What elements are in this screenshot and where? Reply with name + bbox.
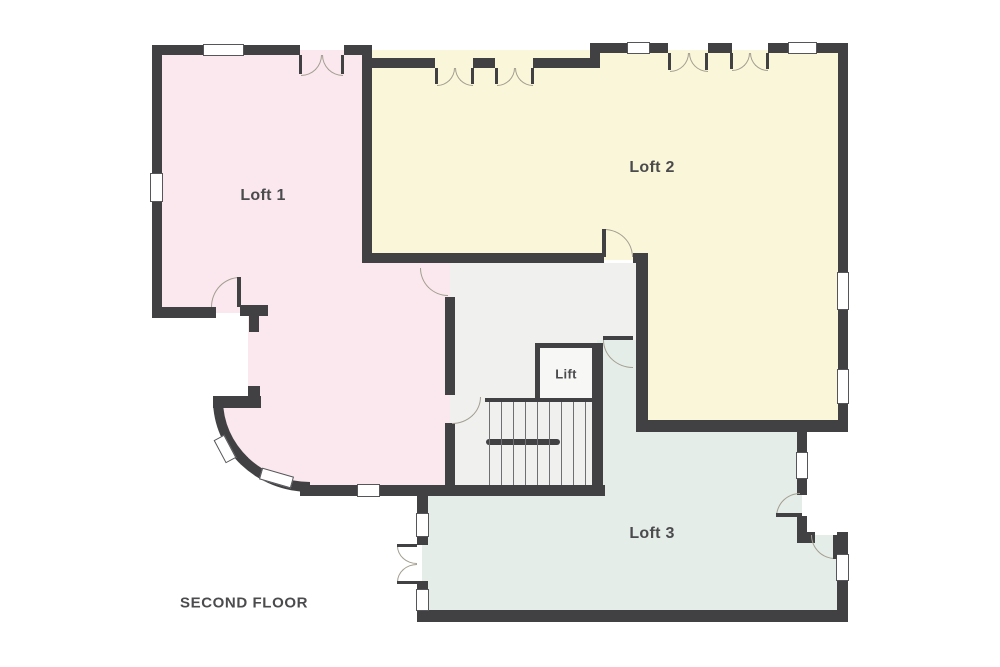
stair-tread [513,402,514,485]
stair-tread [561,402,562,485]
wall [797,432,807,454]
room-loft-1 [157,50,367,265]
door-leaf [471,68,474,84]
door-arc [397,546,417,564]
window [416,589,429,611]
window [203,44,244,56]
room-loft-1 [248,310,450,402]
stair-tread [525,402,526,485]
wall [636,253,648,432]
stair-tread [585,402,586,485]
wall [533,58,592,68]
door-leaf [776,513,802,517]
door-leaf [397,581,417,584]
window [627,42,650,54]
window [788,42,817,54]
window [416,513,429,537]
wall [417,610,848,622]
room-loft-3 [422,490,802,615]
room-label-loft-2: Loft 2 [629,159,674,177]
window [357,484,380,497]
door-leaf [602,229,606,257]
door-leaf [341,55,344,74]
window [796,452,808,479]
door-leaf [705,53,708,70]
wall [240,305,268,316]
room-label-lift: Lift [555,367,576,382]
wall [417,487,428,515]
stair-tread [537,402,538,485]
door-leaf [299,55,302,74]
stair-tread [573,402,574,485]
door-leaf [495,68,498,84]
wall [367,253,604,263]
door-leaf [435,68,438,84]
door-leaf [668,53,671,70]
door-leaf [397,544,417,547]
window [837,272,849,310]
stair-tread [549,402,550,485]
wall [417,536,428,545]
door-arc [397,564,417,582]
door-leaf [766,53,769,69]
room-label-loft-3: Loft 3 [629,525,674,543]
wall [636,420,848,432]
door-leaf [603,336,633,340]
stair-tread [489,402,490,485]
lift-wall [535,343,540,400]
window [837,369,849,404]
window [150,173,163,202]
wall [708,43,732,53]
wall [797,516,807,533]
wall [445,423,455,491]
stair-tread [501,402,502,485]
room-loft-3 [597,432,802,492]
floor-title: SECOND FLOOR [180,595,308,612]
window [836,554,849,581]
wall [445,297,455,395]
room-loft-1 [157,263,450,313]
floor-plan: Loft 1 Loft 2 Loft 3 Lift SECOND FLOOR [0,0,1000,667]
wall [249,316,259,332]
wall [362,45,372,263]
door-leaf [237,277,241,307]
door-leaf [531,68,534,84]
door-leaf [833,535,837,559]
wall [592,343,603,491]
wall [367,58,435,68]
lift-wall [535,343,595,348]
room-loft-2 [641,260,843,428]
door-leaf [730,53,733,69]
room-label-loft-1: Loft 1 [240,187,285,205]
wall [473,58,495,68]
wall [152,307,216,318]
